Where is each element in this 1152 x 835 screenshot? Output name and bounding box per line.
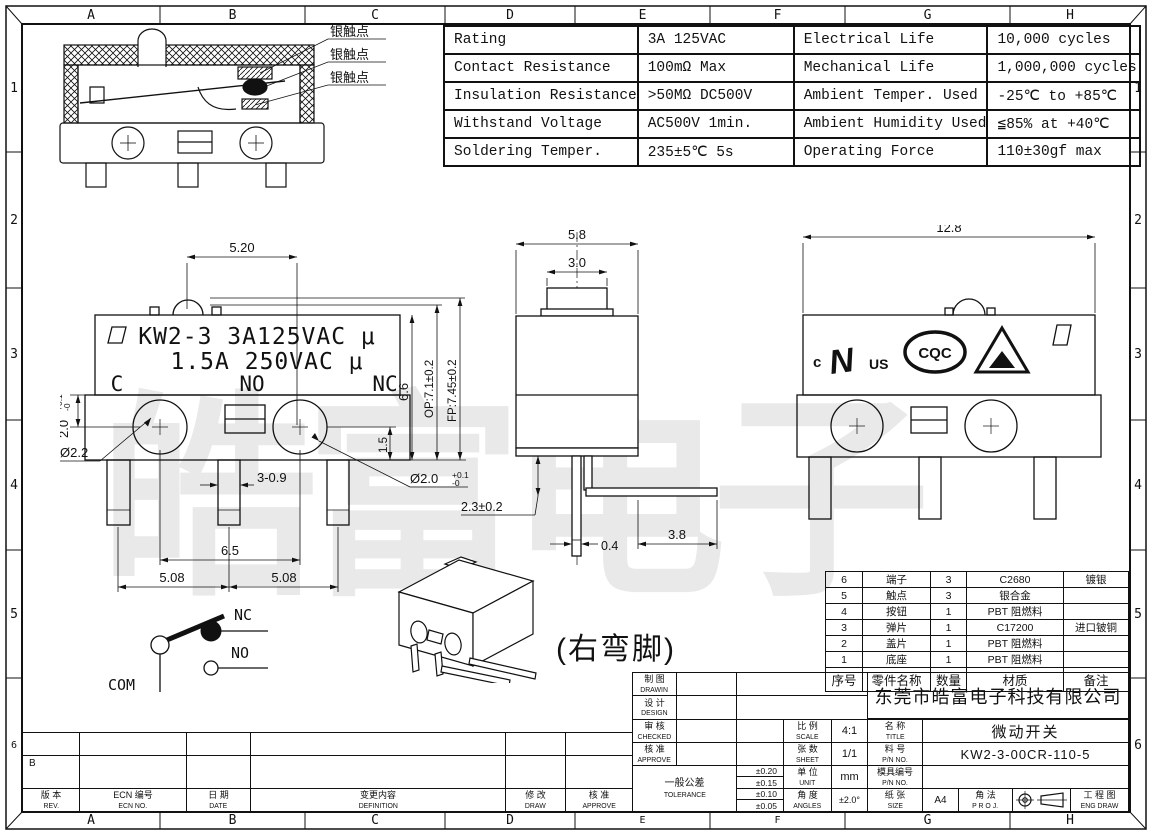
dim-left-tol-dn: -0 — [62, 403, 72, 411]
tb-blank — [736, 719, 784, 743]
col-label-bot-a: A — [22, 812, 160, 829]
tb-angles-value: ±2.0° — [831, 788, 868, 812]
dim-3-8: 3.8 — [668, 527, 686, 542]
rev-empty-cell — [79, 732, 187, 756]
spec-value: ≦85% at +40℃ — [987, 110, 1140, 138]
rev-empty-cell — [250, 732, 506, 756]
tb-drawn-value — [676, 672, 737, 696]
bom-no: 5 — [826, 588, 863, 604]
rev-entry-cell — [565, 755, 633, 789]
dim-hole-right: Ø2.0 — [410, 471, 438, 486]
company-name: 东莞市皓富电子科技有限公司 — [867, 672, 1129, 719]
spec-param: Withstand Voltage — [444, 110, 638, 138]
table-row: Rating3A 125VACElectrical Life10,000 cyc… — [444, 26, 1140, 54]
tb-approve-value — [676, 742, 737, 766]
dim-0-4: 0.4 — [601, 539, 618, 553]
tb-proj-label: 角 法P R O J. — [958, 788, 1013, 812]
rev-header-ecn: ECN 编号ECN NO. — [79, 788, 187, 812]
row-label-left-3: 3 — [6, 288, 22, 420]
bom-remark: 镀银 — [1064, 572, 1129, 588]
dim-hole-left: Ø2.2 — [60, 445, 88, 460]
bom-part: 按钮 — [863, 604, 931, 620]
spec-table: Rating3A 125VACElectrical Life10,000 cyc… — [443, 25, 1141, 167]
spec-param: Mechanical Life — [794, 54, 988, 82]
rev-entry-cell — [186, 755, 251, 789]
rev-header-definition: 变更内容DEFINITION — [250, 788, 506, 812]
col-label-top-g: G — [845, 6, 1010, 24]
spec-value: 235±5℃ 5s — [638, 138, 794, 166]
col-label-top-h: H — [1010, 6, 1130, 24]
silver-contact-label: 银触点 — [330, 70, 369, 85]
table-row: Insulation Resistance>50MΩ DC500VAmbient… — [444, 82, 1140, 110]
tb-checked-label: 审 核CHECKED — [632, 719, 677, 743]
rev-empty-cell — [505, 732, 566, 756]
bom-part: 盖片 — [863, 636, 931, 652]
spec-value: 100mΩ Max — [638, 54, 794, 82]
dim-5-08-right: 5.08 — [271, 570, 296, 585]
bom-qty: 3 — [931, 572, 967, 588]
row-label-left-5: 5 — [6, 550, 22, 678]
isometric-view — [383, 548, 558, 683]
bent-leg-note: (右弯脚) — [556, 624, 676, 668]
col-label-bot-g: G — [845, 812, 1010, 829]
dim-5-08-left: 5.08 — [159, 570, 184, 585]
rev-empty-cell — [186, 732, 251, 756]
ul-c-letter: c — [813, 354, 821, 371]
tb-checked-value — [676, 719, 737, 743]
rev-entry-cell — [79, 755, 187, 789]
spec-param: Ambient Temper. Used — [794, 82, 988, 110]
tb-scale-label: 比 例SCALE — [783, 719, 832, 743]
tb-angles-label: 角 度ANGLES — [783, 788, 832, 812]
bom-part: 底座 — [863, 652, 931, 668]
row-label-right-5: 5 — [1130, 550, 1146, 678]
bom-no: 3 — [826, 620, 863, 636]
table-row: 2盖片1PBT 阻燃料 — [826, 636, 1129, 652]
circuit-com-label: COM — [108, 676, 135, 694]
terminal-label-nc: NC — [372, 372, 397, 396]
bom-remark — [1064, 636, 1129, 652]
col-label-top-f: F — [710, 6, 845, 24]
col-label-top-c: C — [305, 6, 445, 24]
bom-material: C17200 — [967, 620, 1064, 636]
row-label-right-4: 4 — [1130, 420, 1146, 550]
spec-value: AC500V 1min. — [638, 110, 794, 138]
table-row: 5触点3银合金 — [826, 588, 1129, 604]
spec-param: Contact Resistance — [444, 54, 638, 82]
tb-design-label: 设 计DESIGN — [632, 695, 677, 720]
dim-6-6: 6.6 — [396, 383, 411, 401]
dim-3-0: 3.0 — [568, 255, 586, 270]
silver-contact-label: 银触点 — [330, 25, 369, 39]
bom-remark — [1064, 604, 1129, 620]
tb-mold-label: 模具编号P/N NO. — [867, 765, 923, 789]
bom-part: 端子 — [863, 572, 931, 588]
silver-contact-label: 银触点 — [330, 47, 369, 62]
tb-sheet-value: 1/1 — [831, 742, 868, 766]
bom-no: 6 — [826, 572, 863, 588]
tb-mold-value — [922, 765, 1129, 789]
tb-blank — [736, 742, 784, 766]
mold-mark — [1053, 325, 1071, 345]
bom-qty: 1 — [931, 652, 967, 668]
spec-param: Operating Force — [794, 138, 988, 166]
col-label-top-e: E — [575, 6, 710, 24]
tb-engdraw-label: 工 程 图ENG DRAW — [1070, 788, 1129, 812]
tb-blank — [736, 695, 868, 720]
spec-value: 110±30gf max — [987, 138, 1140, 166]
page-title: 微动开关 — [922, 719, 1129, 743]
tb-scale-value: 4:1 — [831, 719, 868, 743]
spec-value: -25℃ to +85℃ — [987, 82, 1140, 110]
bom-no: 4 — [826, 604, 863, 620]
row-label-left-6: 6 — [6, 678, 22, 812]
right-side-view: c N US CQC 12.8 — [795, 225, 1105, 525]
tb-drawn-label: 制 图DRAWIN — [632, 672, 677, 696]
bom-part: 触点 — [863, 588, 931, 604]
spec-value: 3A 125VAC — [638, 26, 794, 54]
rev-header-date: 日 期DATE — [186, 788, 251, 812]
terminal-label-c: C — [111, 372, 124, 396]
bom-remark: 进口铍铜 — [1064, 620, 1129, 636]
col-label-top-d: D — [445, 6, 575, 24]
row-label-right-6: 6 — [1130, 678, 1146, 812]
tb-tolerance-label: 一般公差TOLERANCE — [632, 765, 737, 812]
circuit-diagram: COM NC NO — [100, 590, 300, 705]
bom-material: 银合金 — [967, 588, 1064, 604]
body-marking-line2: 1.5A 250VAC μ — [170, 349, 363, 375]
spec-value: >50MΩ DC500V — [638, 82, 794, 110]
tb-pn-label: 料 号P/N NO. — [867, 742, 923, 766]
tb-unit-value: mm — [831, 765, 868, 789]
triangle-cert-icon — [976, 328, 1028, 372]
bom-material: PBT 阻燃料 — [967, 636, 1064, 652]
bom-no: 1 — [826, 652, 863, 668]
rev-entry-cell — [505, 755, 566, 789]
ul-recognized-icon: N — [827, 341, 858, 382]
table-row: 3弹片1C17200进口铍铜 — [826, 620, 1129, 636]
rev-header-draw: 修 改DRAW — [505, 788, 566, 812]
bom-material: PBT 阻燃料 — [967, 604, 1064, 620]
dim-5-20: 5.20 — [229, 240, 254, 255]
spec-value: 10,000 cycles — [987, 26, 1140, 54]
spec-param: Ambient Humidity Used — [794, 110, 988, 138]
spec-param: Insulation Resistance — [444, 82, 638, 110]
table-row: Contact Resistance100mΩ MaxMechanical Li… — [444, 54, 1140, 82]
table-row: 1底座1PBT 阻燃料 — [826, 652, 1129, 668]
ul-us-letters: US — [869, 356, 888, 372]
table-row: 6端子3C2680镀银 — [826, 572, 1129, 588]
tb-design-value — [676, 695, 737, 720]
tb-approve-label: 核 准APPROVE — [632, 742, 677, 766]
dim-2-3: 2.3±0.2 — [461, 500, 503, 514]
bom-qty: 1 — [931, 604, 967, 620]
dim-left-2-0: 2.0 — [60, 420, 71, 438]
tb-paper-label: 纸 张SIZE — [867, 788, 923, 812]
cqc-letters: CQC — [918, 345, 952, 362]
col-label-bot-b: B — [160, 812, 305, 829]
third-angle-projection-icon — [1014, 790, 1070, 810]
col-label-top-b: B — [160, 6, 305, 24]
row-label-left-1: 1 — [6, 24, 22, 152]
bom-no: 2 — [826, 636, 863, 652]
dim-op: OP:7.1±0.2 — [424, 360, 436, 418]
bom-remark — [1064, 652, 1129, 668]
spec-param: Rating — [444, 26, 638, 54]
row-label-right-3: 3 — [1130, 288, 1146, 420]
bom-remark — [1064, 588, 1129, 604]
rev-empty-cell — [22, 732, 80, 756]
bom-qty: 1 — [931, 636, 967, 652]
tb-tol-4: ±0.05 — [736, 799, 784, 812]
col-label-bot-c: C — [305, 812, 445, 829]
bom-qty: 1 — [931, 620, 967, 636]
row-label-left-4: 4 — [6, 420, 22, 550]
tb-unit-label: 单 位UNIT — [783, 765, 832, 789]
col-label-bot-e: E — [575, 812, 710, 829]
bom-part: 弹片 — [863, 620, 931, 636]
cross-section-view: 银触点 银触点 银触点 — [50, 25, 390, 197]
table-row: Soldering Temper.235±5℃ 5sOperating Forc… — [444, 138, 1140, 166]
bom-qty: 3 — [931, 588, 967, 604]
circuit-nc-label: NC — [234, 606, 252, 624]
front-view: KW2-3 3A125VAC μ 1.5A 250VAC μ C NO NC — [60, 235, 480, 595]
terminal-label-no: NO — [239, 372, 264, 396]
dim-1-5: 1.5 — [378, 437, 390, 453]
table-row: Withstand VoltageAC500V 1min.Ambient Hum… — [444, 110, 1140, 138]
rev-header-approve: 核 准APPROVE — [565, 788, 633, 812]
rev-empty-cell — [565, 732, 633, 756]
col-label-bot-f: F — [710, 812, 845, 829]
tb-paper-value: A4 — [922, 788, 959, 812]
rev-header-rev: 版 本REV. — [22, 788, 80, 812]
col-label-bot-h: H — [1010, 812, 1130, 829]
projection-symbol — [1012, 788, 1071, 812]
row-label-right-2: 2 — [1130, 152, 1146, 288]
spec-param: Electrical Life — [794, 26, 988, 54]
tb-sheet-label: 张 数SHEET — [783, 742, 832, 766]
part-number: KW2-3-00CR-110-5 — [922, 742, 1129, 766]
dim-12-8: 12.8 — [936, 225, 961, 235]
rev-entry-cell — [250, 755, 506, 789]
spec-value: 1,000,000 cycles — [987, 54, 1140, 82]
row-label-left-2: 2 — [6, 152, 22, 288]
spec-param: Soldering Temper. — [444, 138, 638, 166]
bom-material: PBT 阻燃料 — [967, 652, 1064, 668]
circuit-no-label: NO — [231, 644, 249, 662]
col-label-bot-d: D — [445, 812, 575, 829]
col-label-top-a: A — [22, 6, 160, 24]
side-view: 5.8 3.0 2.3±0.2 0.4 3.8 — [455, 230, 735, 570]
bom-material: C2680 — [967, 572, 1064, 588]
dim-5-8: 5.8 — [568, 230, 586, 242]
rev-entry-b: B — [22, 755, 80, 789]
body-marking-line1: KW2-3 3A125VAC μ — [138, 324, 376, 350]
dim-6-5: 6.5 — [221, 543, 239, 558]
tb-blank — [736, 672, 868, 696]
dim-pin-width: 3-0.9 — [257, 470, 287, 485]
table-row: 4按钮1PBT 阻燃料 — [826, 604, 1129, 620]
tb-title-label: 名 称TITLE — [867, 719, 923, 743]
